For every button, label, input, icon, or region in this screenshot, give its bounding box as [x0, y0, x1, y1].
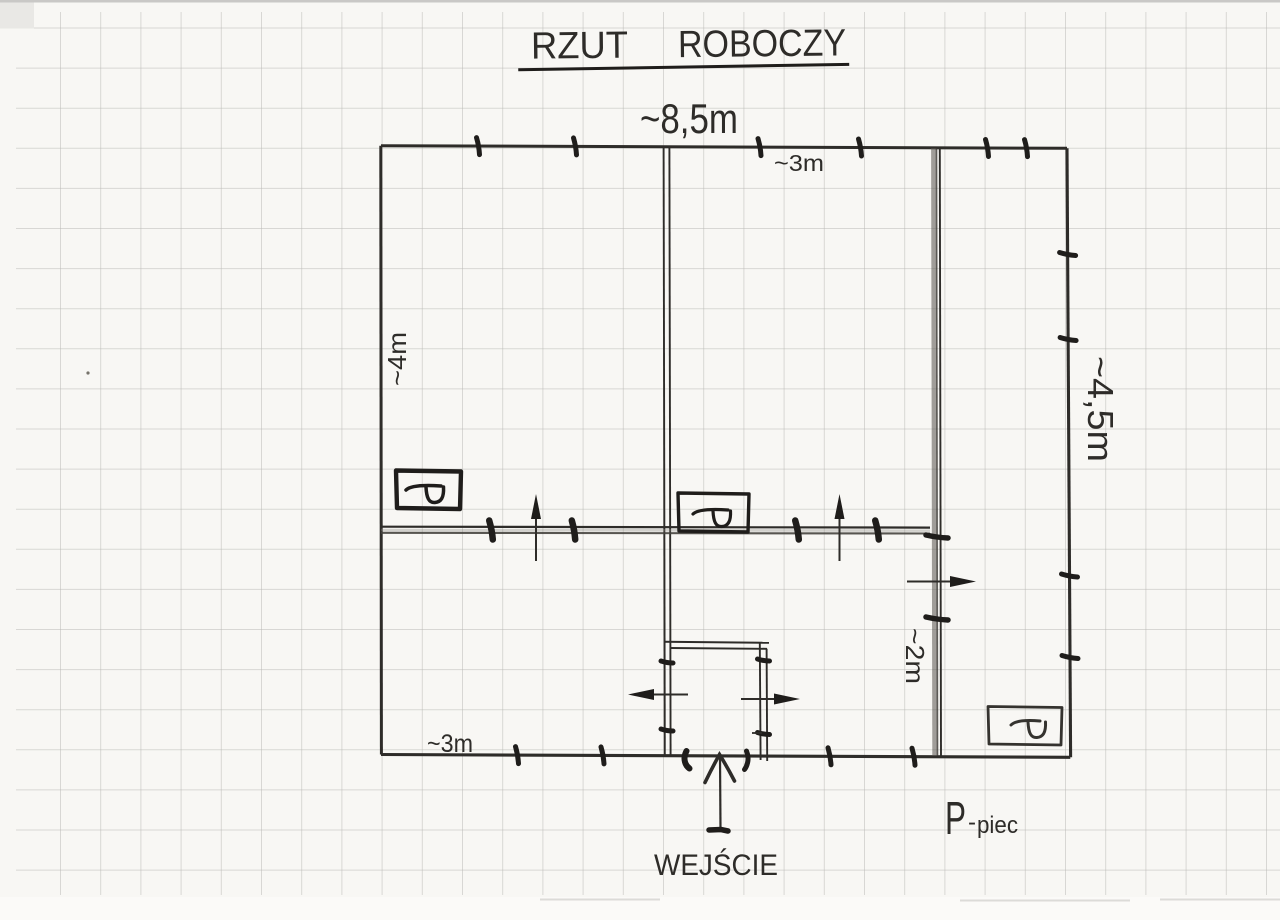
svg-text:~4m: ~4m [382, 332, 412, 386]
svg-text:ROBOCZY: ROBOCZY [678, 22, 846, 66]
svg-text:~2m: ~2m [900, 628, 930, 684]
svg-text:~4,5m: ~4,5m [1080, 356, 1121, 462]
svg-text:~3m: ~3m [774, 150, 824, 176]
svg-text:-: - [968, 809, 976, 836]
svg-text:~8,5m: ~8,5m [640, 95, 738, 142]
svg-text:RZUT: RZUT [531, 25, 628, 68]
svg-text:P: P [945, 792, 966, 844]
svg-text:~3m: ~3m [427, 730, 473, 758]
svg-text:WEJŚCIE: WEJŚCIE [654, 848, 778, 882]
svg-text:piec: piec [977, 812, 1018, 839]
